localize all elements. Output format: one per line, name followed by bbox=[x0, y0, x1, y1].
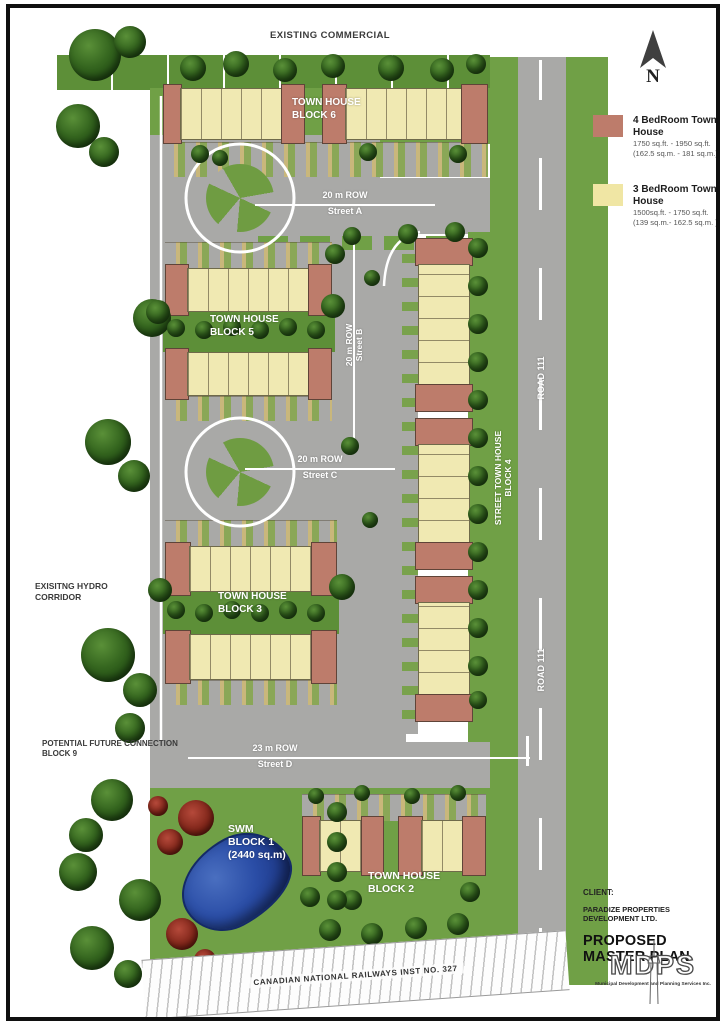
tree-icon bbox=[85, 419, 131, 465]
road111-centerline bbox=[539, 60, 542, 980]
road111-crossing-mark bbox=[526, 736, 529, 766]
road111-road bbox=[518, 57, 566, 985]
legend-area-metric-4bed: (162.5 sq.m. - 181 sq.m.) bbox=[633, 149, 721, 159]
legend-area-imperial-4bed: 1750 sq.ft. - 1950 sq.ft. bbox=[633, 139, 721, 149]
legend-item-3bed: 3 BedRoom Town House 1500sq.ft. - 1750 s… bbox=[593, 184, 721, 229]
hydro-corridor-label: EXISITNG HYDRO CORRIDOR bbox=[35, 581, 155, 603]
legend-label-4bed: 4 BedRoom Town House bbox=[633, 115, 721, 139]
block4-label: STREET TOWN HOUSE BLOCK 4 bbox=[490, 422, 516, 534]
townhouse-unit-4bed bbox=[415, 576, 473, 604]
townhouse-unit-4bed bbox=[415, 418, 473, 446]
swm-block1-label: SWM BLOCK 1 (2440 sq.m) bbox=[228, 823, 286, 862]
legend-area-metric-3bed: (139 sq.m.- 162.5 sq.m. ) bbox=[633, 218, 721, 228]
townhouse-units-3bed bbox=[418, 264, 470, 386]
townhouse-unit-4bed bbox=[415, 694, 473, 722]
street-b-label: 20 m ROW Street B bbox=[334, 285, 374, 405]
block4-driveways bbox=[402, 240, 418, 734]
block5-label: TOWN HOUSE BLOCK 5 bbox=[210, 314, 279, 339]
townhouse-unit-4bed bbox=[415, 238, 473, 266]
block3-label: TOWN HOUSE BLOCK 3 bbox=[218, 591, 287, 616]
legend-label-3bed: 3 BedRoom Town House bbox=[633, 184, 721, 208]
legend: 4 BedRoom Town House 1750 sq.ft. - 1950 … bbox=[593, 115, 721, 228]
tree-icon bbox=[59, 853, 97, 891]
master-plan: CANADIAN NATIONAL RAILWAYS INST NO. 327 … bbox=[0, 0, 724, 1023]
tree-icon bbox=[118, 460, 150, 492]
legend-swatch-3bed bbox=[593, 184, 623, 206]
cn-tower-icon bbox=[647, 940, 661, 1006]
townhouse-units-3bed bbox=[418, 602, 470, 696]
townhouse-unit-4bed bbox=[415, 542, 473, 570]
legend-area-imperial-3bed: 1500sq.ft. - 1750 sq.ft. bbox=[633, 208, 721, 218]
client-label: CLIENT: bbox=[583, 888, 713, 897]
street-d-label: 23 m ROW Street D bbox=[195, 743, 355, 769]
tree-icon bbox=[89, 137, 119, 167]
townhouse-unit-4bed bbox=[415, 384, 473, 412]
tree-icon bbox=[91, 779, 133, 821]
tree-icon bbox=[114, 960, 142, 988]
street-townhouse-group bbox=[418, 576, 470, 722]
tree-icon bbox=[449, 145, 467, 163]
existing-commercial-label: EXISTING COMMERCIAL bbox=[245, 30, 415, 42]
verge-pad bbox=[426, 236, 456, 250]
north-arrow-n: N bbox=[633, 66, 673, 88]
mdps-logo: MDPS Municipal Development and Planning … bbox=[593, 950, 713, 987]
tree-icon bbox=[56, 104, 100, 148]
tree-icon bbox=[81, 628, 135, 682]
commercial-frontage-strip bbox=[57, 55, 490, 90]
future-connection-label: POTENTIAL FUTURE CONNECTION BLOCK 9 bbox=[42, 739, 212, 760]
railway-label: CANADIAN NATIONAL RAILWAYS INST NO. 327 bbox=[247, 962, 464, 988]
tree-icon bbox=[70, 926, 114, 970]
legend-swatch-4bed bbox=[593, 115, 623, 137]
street-townhouse-group bbox=[418, 238, 470, 412]
tree-icon bbox=[69, 818, 103, 852]
road111-lower-label: ROAD 111 bbox=[531, 630, 551, 710]
street-c-label: 20 m ROW Street C bbox=[245, 454, 395, 480]
client-name: PARADIZE PROPERTIES DEVELOPMENT LTD. bbox=[583, 905, 713, 923]
street-a-label: 20 m ROW Street A bbox=[265, 190, 425, 216]
block6-label: TOWN HOUSE BLOCK 6 bbox=[292, 97, 361, 122]
legend-item-4bed: 4 BedRoom Town House 1750 sq.ft. - 1950 … bbox=[593, 115, 721, 160]
block2-label: TOWN HOUSE BLOCK 2 bbox=[368, 870, 440, 896]
north-arrow: N bbox=[633, 28, 673, 88]
north-culdesac-island bbox=[206, 164, 274, 232]
tree-icon bbox=[114, 26, 146, 58]
road111-upper-label: ROAD 111 bbox=[531, 338, 551, 418]
